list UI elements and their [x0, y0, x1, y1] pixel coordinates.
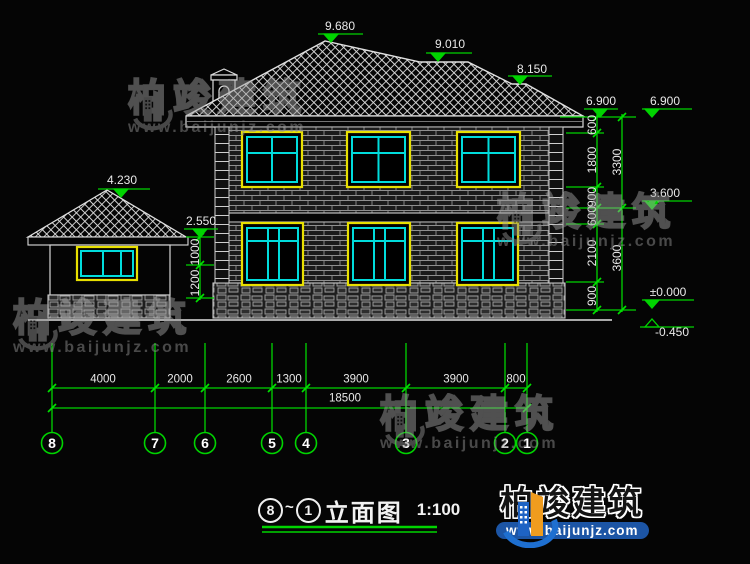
- window-lower-2: [348, 223, 410, 285]
- grid-bubble-5: 5: [268, 435, 276, 451]
- dim-label-vertical: 1200: [189, 270, 201, 297]
- dim-label: 4.230: [107, 174, 137, 186]
- grid-bubble-4: 4: [302, 435, 310, 451]
- window-upper-3: [457, 132, 520, 187]
- window-upper-2: [347, 132, 410, 187]
- title-circle-8: 8: [258, 498, 283, 523]
- dim-label: 18500: [329, 393, 361, 405]
- company-logo: 柏竣建筑 www.baijunjz.com: [496, 486, 649, 539]
- dim-label-vertical: 600: [586, 206, 598, 226]
- elevation-drawing: [0, 0, 750, 564]
- left-corner-quoin: [215, 127, 229, 283]
- dim-label-vertical: 3600: [611, 245, 623, 272]
- dim-label: 8.150: [517, 63, 547, 75]
- cad-elevation-screenshot: 9.6809.0108.1506.9006.9003.600±0.000-0.4…: [0, 0, 750, 564]
- dim-label-vertical: 900: [586, 187, 598, 207]
- dim-label-vertical: 2100: [586, 240, 598, 267]
- company-logo-icon: [496, 486, 560, 548]
- window-lower-3: [457, 223, 518, 285]
- window-lower-1: [242, 223, 303, 285]
- small-eave-fascia: [28, 237, 188, 245]
- main-eave-fascia: [186, 116, 583, 127]
- grid-bubble-8: 8: [48, 435, 56, 451]
- dim-label-vertical: 1800: [586, 147, 598, 174]
- dim-label: 6.900: [650, 95, 680, 107]
- small-foundation-stone: [48, 295, 170, 318]
- dim-label: 9.010: [435, 38, 465, 50]
- title-tilde: ~: [285, 499, 294, 516]
- title-text: 立面图: [325, 493, 403, 528]
- dim-label: 3900: [343, 374, 369, 386]
- grid-bubble-3: 3: [402, 435, 410, 451]
- dim-label: 3900: [443, 374, 469, 386]
- dim-label: 2000: [167, 374, 193, 386]
- window-upper-1: [242, 132, 302, 187]
- title-scale: 1:100: [417, 500, 460, 520]
- dim-label: 6.900: [586, 95, 616, 107]
- dim-label-vertical: 600: [586, 115, 598, 135]
- dim-label-vertical: 900: [586, 286, 598, 306]
- dim-label: 1300: [276, 374, 302, 386]
- grid-bubbles-circles: [42, 433, 538, 454]
- grid-bubble-7: 7: [151, 435, 159, 451]
- grid-bubble-2: 2: [501, 435, 509, 451]
- grid-bubble-1: 1: [523, 435, 531, 451]
- dim-label: 3.600: [650, 187, 680, 199]
- title-circle-1: 1: [296, 498, 321, 523]
- dim-label: -0.450: [655, 326, 689, 338]
- small-roof: [28, 190, 186, 237]
- dim-label: 4000: [90, 374, 116, 386]
- dim-label-vertical: 1000: [189, 239, 201, 266]
- right-corner-quoin: [549, 127, 563, 283]
- drawing-title: 8 ~ 1 立面图 1:100: [258, 496, 460, 524]
- grid-bubble-6: 6: [201, 435, 209, 451]
- dim-label: 2.550: [186, 215, 216, 227]
- floor-band: [215, 213, 563, 222]
- dim-label: ±0.000: [650, 286, 687, 298]
- dim-label: 2600: [226, 374, 252, 386]
- window-small: [77, 247, 137, 280]
- dim-label: 800: [506, 374, 525, 386]
- dim-label: 9.680: [325, 20, 355, 32]
- main-foundation-stone: [213, 283, 565, 318]
- dim-label-vertical: 3300: [611, 149, 623, 176]
